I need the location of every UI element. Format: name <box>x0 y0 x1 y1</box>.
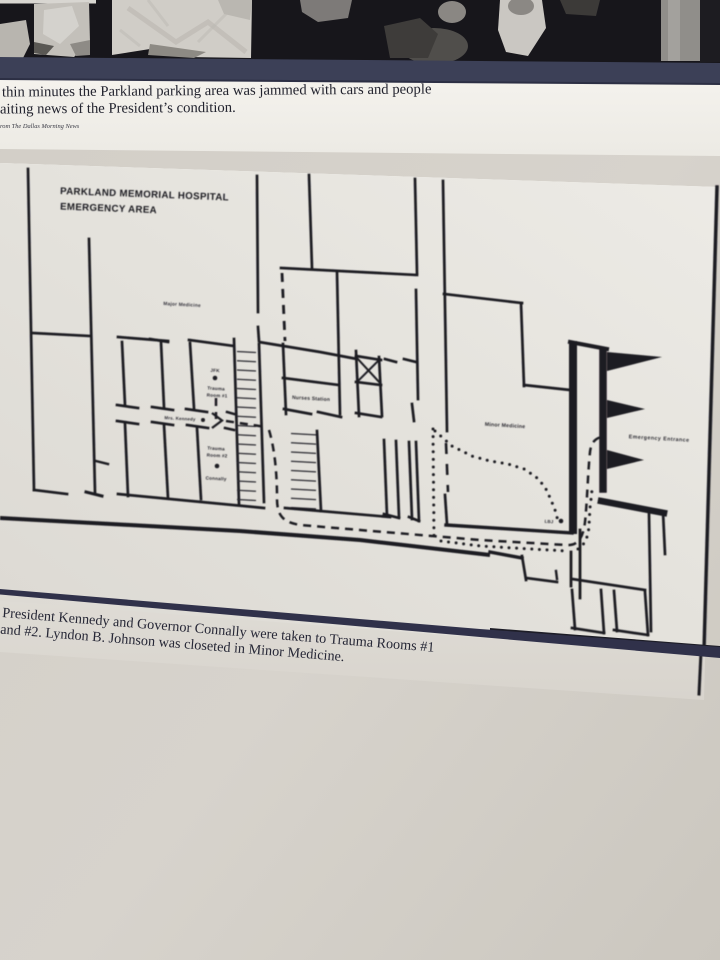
svg-text:Trauma: Trauma <box>207 446 225 452</box>
svg-text:thin minutes the Parkland park: thin minutes the Parkland parking area w… <box>2 81 432 100</box>
svg-text:JFK: JFK <box>210 368 220 374</box>
svg-text:Trauma: Trauma <box>207 386 225 392</box>
svg-text:aiting news of the President’s: aiting news of the President’s condition… <box>0 100 236 118</box>
svg-text:rom The Dallas Morning News: rom The Dallas Morning News <box>0 123 80 130</box>
svg-text:LBJ: LBJ <box>544 519 554 525</box>
